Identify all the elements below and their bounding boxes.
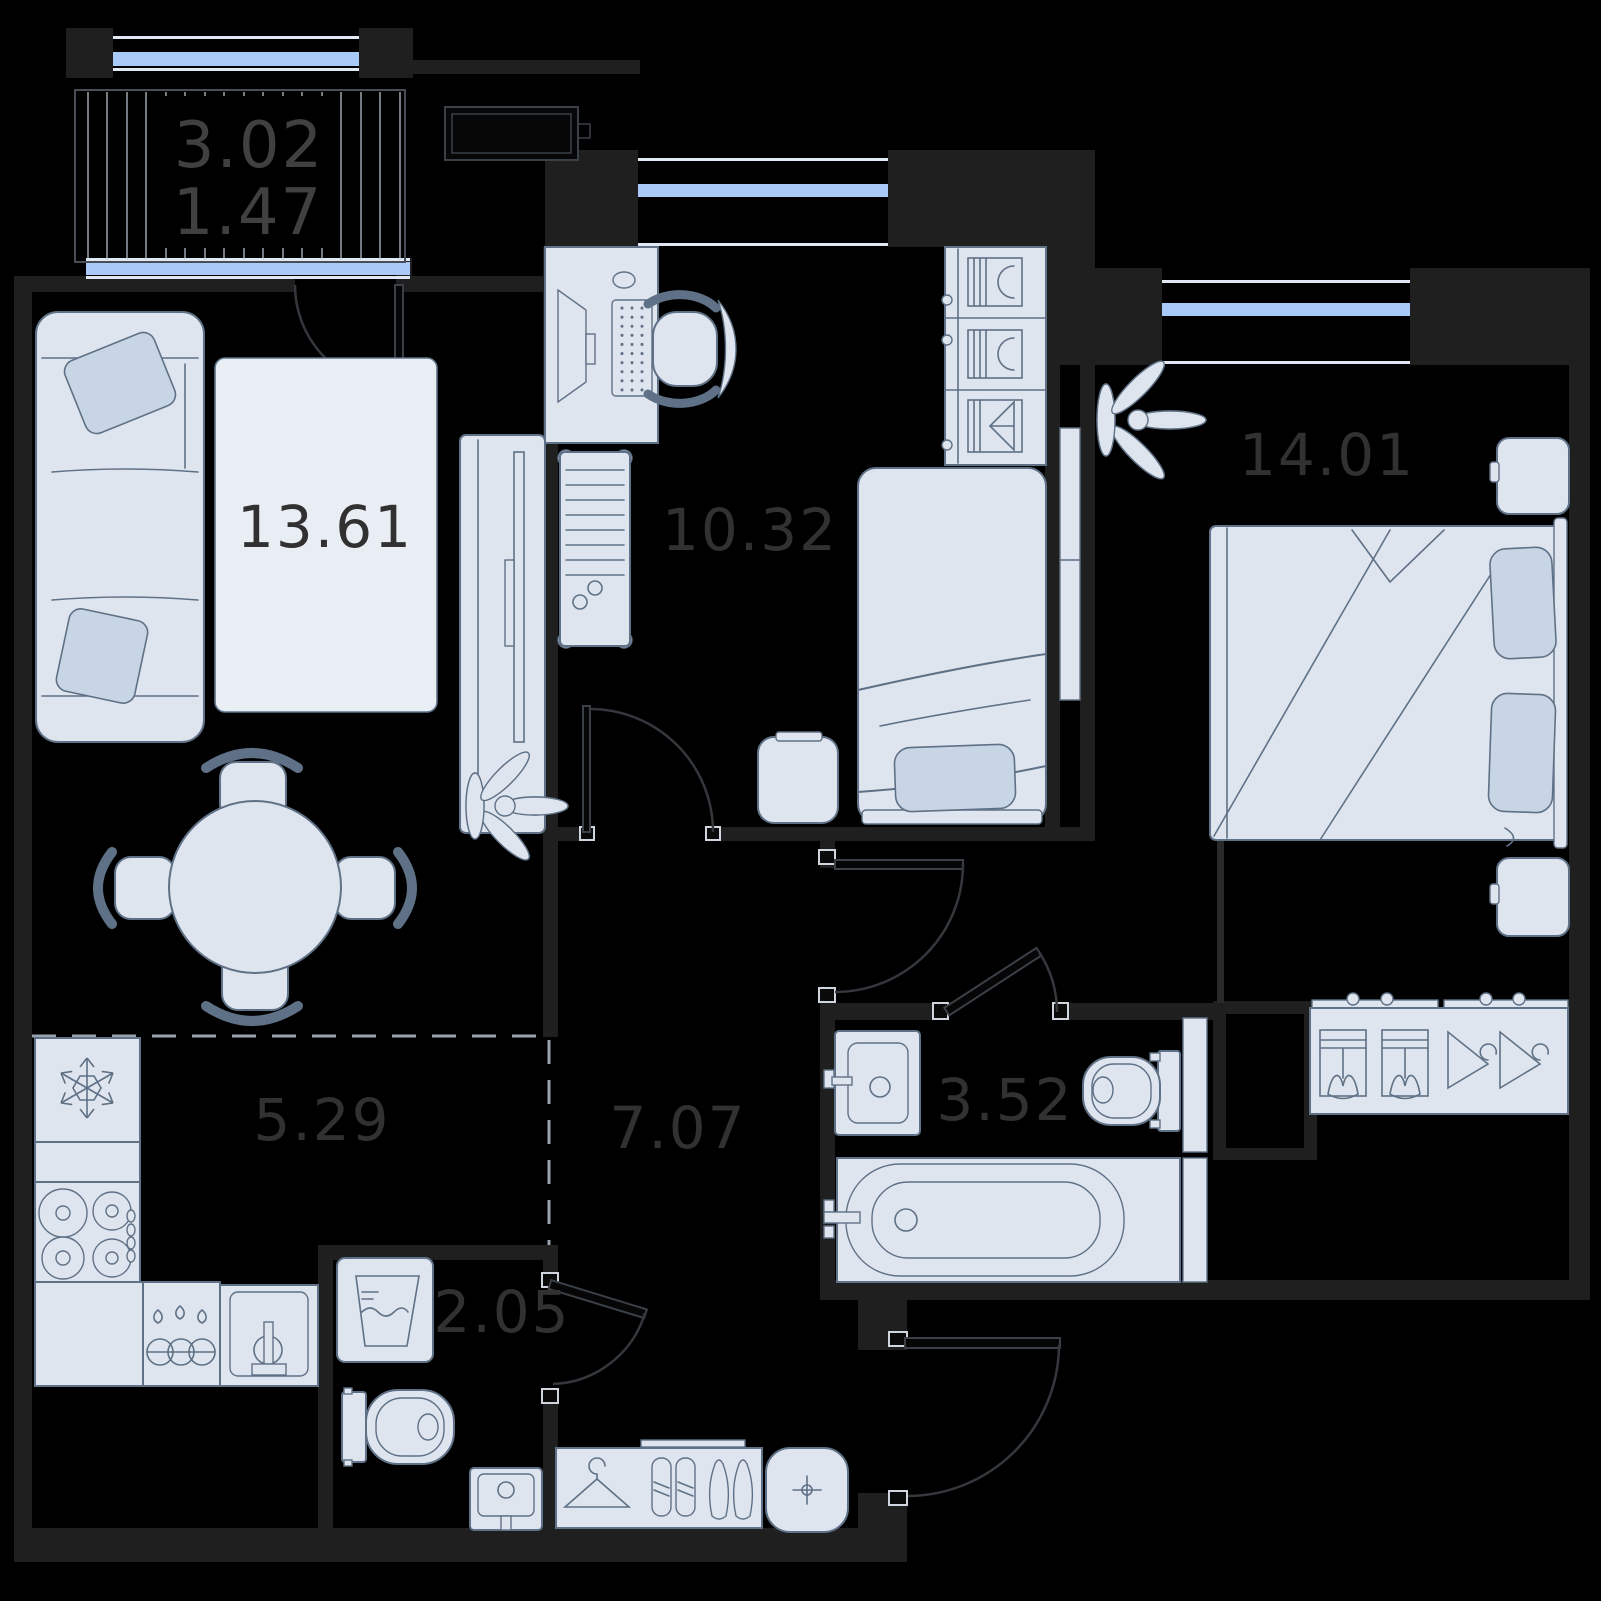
wall-segment (14, 276, 32, 1562)
living-area-label: 13.61 (237, 493, 413, 561)
dining-chair (98, 852, 175, 924)
ac-unit (445, 107, 590, 160)
window-balcony-top (113, 36, 359, 71)
desk (545, 247, 658, 443)
nightstand (1490, 438, 1569, 514)
kitchen-counter-corner (35, 1282, 143, 1386)
wall-segment (1080, 365, 1095, 841)
ottoman (766, 1448, 848, 1532)
sofa-pillow (54, 607, 150, 706)
wall-segment (359, 28, 413, 78)
drawer-cart (558, 450, 632, 648)
room-living: 13.61 (36, 312, 568, 1021)
wall-segment (1569, 283, 1590, 1300)
washing-machine (337, 1258, 433, 1362)
room-bathroom: 3.52 (824, 1018, 1207, 1282)
bed-pillow (1488, 693, 1556, 813)
glass-partition (1217, 838, 1224, 1003)
bathroom-shelf (1183, 1018, 1207, 1152)
sofa (36, 312, 204, 742)
kitchen-sink (220, 1285, 318, 1386)
office-chair (648, 295, 736, 404)
keyboard (612, 300, 652, 396)
wall-segment (1060, 247, 1095, 365)
fridge (35, 1038, 140, 1142)
hallway-area-label: 7.07 (609, 1094, 746, 1162)
kitchen-area-label: 5.29 (253, 1086, 390, 1154)
room-bedroom: 14.01 (1060, 356, 1569, 1114)
floor-plan: 3.02 1.47 (0, 0, 1601, 1601)
monitor (558, 290, 586, 402)
wc-area-label: 2.05 (433, 1278, 570, 1346)
bathtub (824, 1158, 1180, 1282)
bedroom-area-label: 14.01 (1239, 421, 1415, 489)
dining-table (169, 801, 341, 973)
sink (470, 1468, 542, 1530)
wall-segment (318, 1260, 333, 1528)
balcony-area-total: 3.02 (174, 109, 325, 183)
bathroom-shelf (1183, 1158, 1207, 1282)
dishes-unit (143, 1282, 220, 1386)
mirror (1060, 428, 1080, 700)
balcony-area-reduced: 1.47 (173, 176, 324, 250)
mouse (613, 272, 635, 288)
wall-segment (396, 276, 545, 292)
room-wc: 2.05 (337, 1258, 571, 1530)
floor-plan-canvas: 3.02 1.47 (0, 0, 1601, 1601)
bathroom-area-label: 3.52 (936, 1066, 1073, 1134)
wall-segment (410, 60, 640, 74)
sink (824, 1031, 920, 1135)
balcony: 3.02 1.47 (75, 90, 405, 262)
stove (35, 1182, 140, 1282)
dining-chair (335, 852, 412, 924)
plant (1097, 356, 1206, 485)
wall-segment (820, 1020, 835, 1300)
dining-table-set (98, 753, 412, 1021)
entry-door (889, 1332, 1060, 1505)
vestibule-door (819, 850, 963, 1002)
room-hallway: 7.07 (556, 1094, 848, 1532)
nightstand (1490, 858, 1569, 936)
toilet (342, 1388, 454, 1466)
double-bed (1210, 518, 1567, 848)
shoe-cabinet (556, 1440, 762, 1528)
toilet (1083, 1051, 1180, 1131)
wall-segment (820, 1003, 947, 1020)
wall-segment (1213, 1001, 1226, 1160)
window-bedroom (1162, 268, 1410, 365)
window-study (638, 150, 888, 247)
bed-pillow (1489, 546, 1557, 659)
wall-segment (1213, 1148, 1317, 1160)
kitchen-counter (35, 1142, 140, 1182)
room-study: 10.32 (545, 247, 1046, 824)
bathroom-door (933, 948, 1068, 1019)
tv (514, 452, 524, 742)
wall-segment (66, 28, 113, 78)
wall-segment (713, 827, 1080, 841)
wall-segment (1045, 247, 1060, 841)
study-door (580, 706, 720, 840)
bed-pillow (894, 744, 1016, 812)
bedside-pouf (758, 732, 838, 823)
wall-segment (14, 1528, 907, 1562)
wardrobe (942, 247, 1046, 465)
closet (1310, 993, 1568, 1114)
wall-segment (1213, 1001, 1317, 1014)
study-area-label: 10.32 (662, 496, 838, 564)
single-bed (858, 468, 1046, 824)
